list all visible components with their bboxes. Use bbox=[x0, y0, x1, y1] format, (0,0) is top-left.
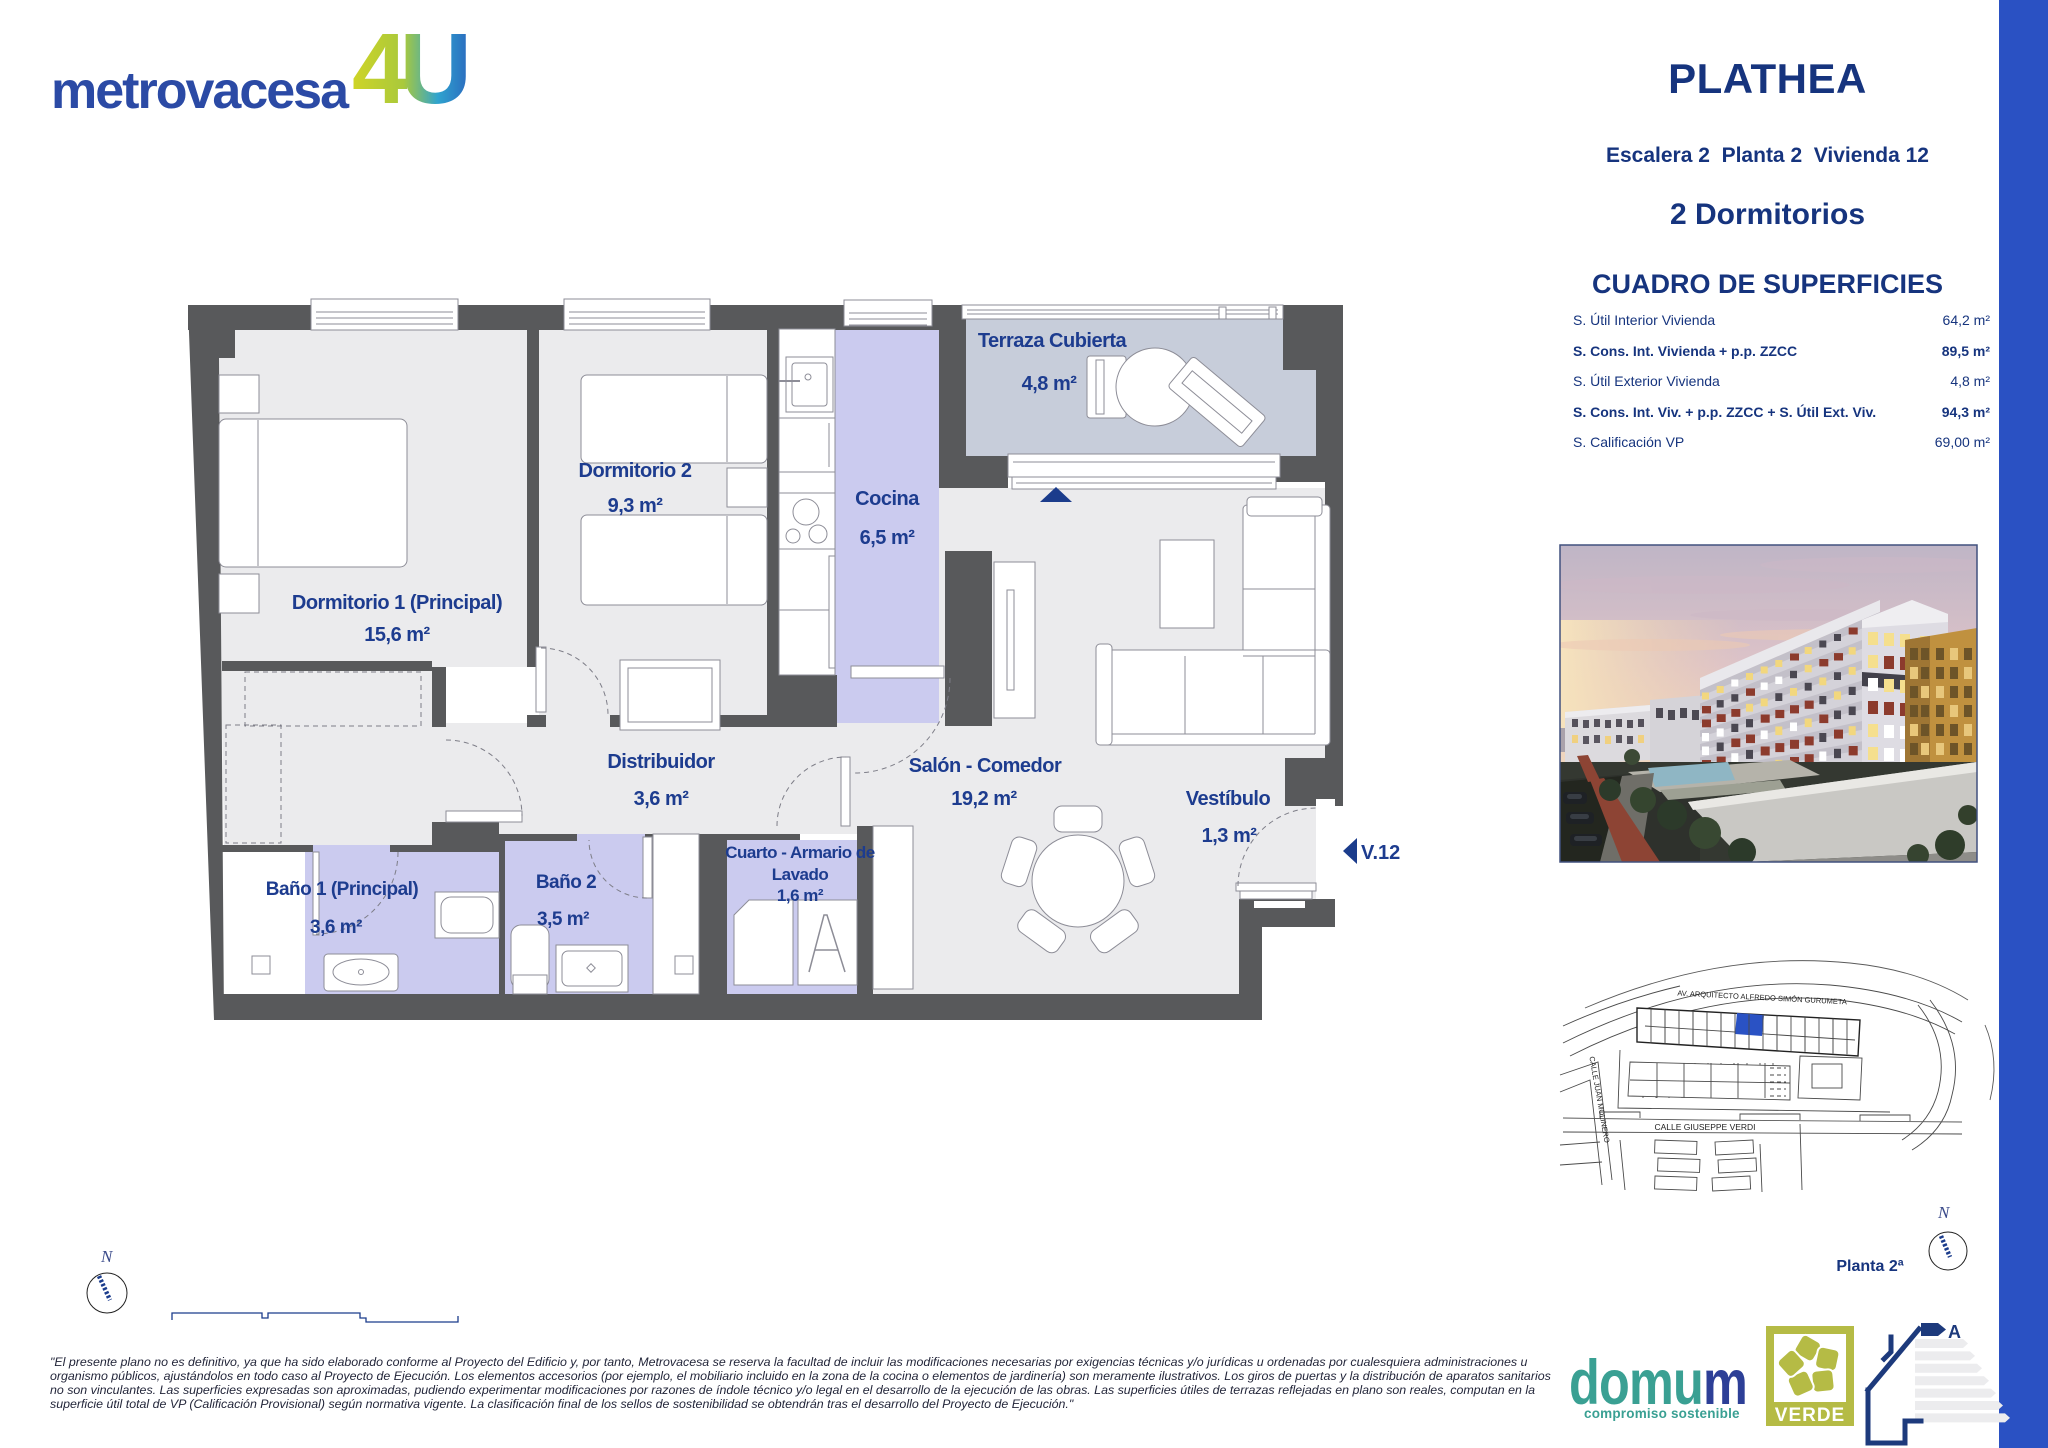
svg-text:Baño 1 (Principal): Baño 1 (Principal) bbox=[266, 879, 419, 900]
svg-text:Vestíbulo: Vestíbulo bbox=[1186, 788, 1271, 810]
svg-text:1,3 m²: 1,3 m² bbox=[1202, 825, 1258, 847]
svg-text:1,6 m²: 1,6 m² bbox=[777, 886, 824, 905]
svg-text:3,6 m²: 3,6 m² bbox=[634, 788, 690, 810]
svg-text:Baño 2: Baño 2 bbox=[536, 872, 596, 893]
svg-text:Dormitorio 1 (Principal): Dormitorio 1 (Principal) bbox=[292, 592, 502, 614]
svg-text:VERDE: VERDE bbox=[1775, 1405, 1845, 1426]
svg-text:3,6 m²: 3,6 m² bbox=[310, 917, 362, 938]
svg-text:Salón - Comedor: Salón - Comedor bbox=[909, 755, 1062, 777]
svg-text:Cuarto - Armario de: Cuarto - Armario de bbox=[725, 843, 875, 862]
svg-text:AV. ARQUITECTO ALFREDO SIMÓN G: AV. ARQUITECTO ALFREDO SIMÓN GURUMETA bbox=[1677, 989, 1847, 1007]
svg-text:N: N bbox=[100, 1247, 114, 1266]
svg-text:4,8 m²: 4,8 m² bbox=[1022, 373, 1078, 395]
svg-text:Distribuidor: Distribuidor bbox=[607, 751, 715, 773]
svg-text:9,3 m²: 9,3 m² bbox=[608, 495, 664, 517]
svg-text:3,5 m²: 3,5 m² bbox=[537, 909, 589, 930]
svg-text:N: N bbox=[1937, 1203, 1951, 1222]
svg-text:Lavado: Lavado bbox=[772, 865, 829, 884]
svg-text:6,5 m²: 6,5 m² bbox=[860, 527, 916, 549]
svg-text:V.12: V.12 bbox=[1361, 842, 1400, 864]
svg-text:19,2 m²: 19,2 m² bbox=[951, 788, 1017, 810]
svg-text:CALLE GIUSEPPE VERDI: CALLE GIUSEPPE VERDI bbox=[1654, 1122, 1755, 1132]
svg-text:Terraza Cubierta: Terraza Cubierta bbox=[978, 330, 1128, 352]
svg-text:Dormitorio 2: Dormitorio 2 bbox=[579, 460, 692, 482]
svg-text:Cocina: Cocina bbox=[855, 488, 920, 510]
svg-text:A: A bbox=[1948, 1322, 1961, 1342]
svg-text:15,6 m²: 15,6 m² bbox=[364, 624, 430, 646]
svg-text:CALLE JUAN MOLINERO: CALLE JUAN MOLINERO bbox=[1587, 1056, 1611, 1144]
